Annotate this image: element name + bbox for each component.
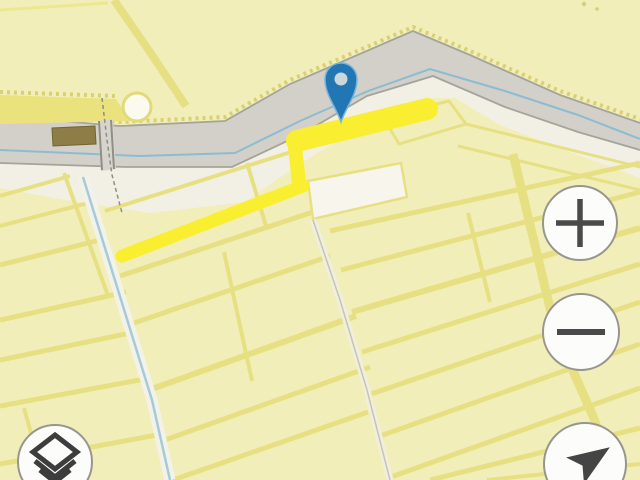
map-speck [582, 2, 586, 6]
parcel-line [162, 367, 370, 441]
minus-icon [544, 295, 618, 369]
locate-button[interactable] [543, 422, 627, 480]
map-screen [0, 0, 640, 480]
location-pin-center [335, 73, 348, 86]
plus-icon [544, 187, 616, 259]
parcel-line [0, 332, 135, 360]
white-parcel [308, 163, 407, 219]
parcel-line [468, 213, 490, 302]
zoom-in-button[interactable] [542, 185, 618, 261]
building [52, 126, 96, 146]
parcel-line [0, 3, 108, 10]
parcel-line [0, 378, 150, 406]
layers-button[interactable] [17, 424, 93, 480]
parcel-line [173, 412, 368, 480]
highlighted-route [295, 147, 299, 183]
embankment-ticks [0, 92, 116, 96]
field-road [114, 0, 186, 106]
navigation-arrow-icon [545, 424, 625, 480]
pond [123, 93, 151, 121]
map-speck [595, 7, 599, 11]
layers-icon [19, 426, 91, 480]
zoom-out-button[interactable] [542, 293, 620, 371]
